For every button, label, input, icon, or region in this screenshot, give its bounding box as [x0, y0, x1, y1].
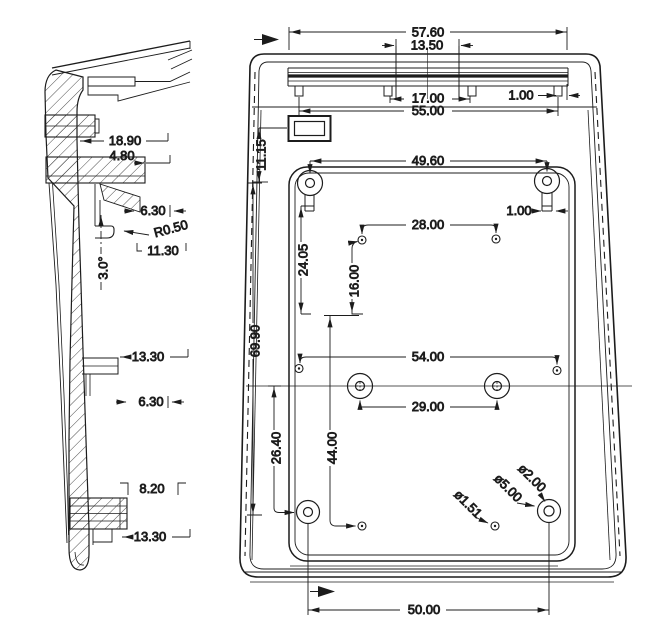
dim-text: 44.00 [325, 432, 340, 465]
dim-right-16-00: 16.00 [347, 242, 364, 315]
dim-text: 28.00 [412, 217, 445, 232]
small-holes [295, 235, 561, 530]
dim-right-1-00-side: 1.00 [506, 203, 568, 218]
dim-text: 8.20 [139, 481, 164, 496]
dim-text: R0.50 [152, 217, 189, 240]
section-arrow-bottom [310, 586, 335, 597]
dim-text: 49.60 [412, 153, 445, 168]
dim-text: 18.90 [109, 133, 142, 148]
dim-text: ø1.51 [451, 487, 485, 521]
snap-tab [468, 86, 476, 96]
dim-right-24-05: 24.05 [296, 206, 312, 314]
dim-text: 4.80 [109, 148, 134, 163]
dim-text: 55.00 [412, 103, 445, 118]
dim-text: 69.90 [248, 325, 263, 358]
dim-right-49-60: 49.60 [310, 153, 547, 174]
dim-left-13-30-mid: 13.30 [120, 349, 188, 364]
shelf-step-section [100, 184, 140, 212]
dim-text: 3.0° [96, 256, 111, 279]
small-hole [491, 522, 499, 530]
dim-left-6-30-mid: 6.30 [116, 394, 184, 409]
snap-tab [295, 86, 303, 96]
snap-tab [554, 86, 562, 96]
dim-right-1-00-top: 1.00 [508, 84, 580, 103]
small-hole [295, 365, 303, 373]
dim-text: 13.30 [132, 349, 165, 364]
small-hole [358, 236, 366, 244]
small-hole [492, 235, 500, 243]
dim-text: 6.30 [140, 203, 165, 218]
dim-right-13-50: 13.50 [382, 38, 473, 53]
side-section-view: 18.90 4.80 6.30 R0.50 11.30 3.0° [45, 41, 192, 570]
dim-left-r0-50: R0.50 [124, 217, 190, 240]
dim-left-13-30-bot: 13.30 [122, 529, 190, 544]
mounting-boss-bottom-right [538, 500, 561, 523]
dim-right-69-90: 69.90 [247, 183, 263, 515]
dim-text: 54.00 [412, 349, 445, 364]
small-hole [358, 522, 366, 530]
dim-left-8-20: 8.20 [120, 481, 186, 496]
dim-text: 26.40 [269, 432, 284, 465]
dim-text: 24.05 [296, 244, 311, 277]
dim-text: 1.00 [506, 203, 531, 218]
technical-drawing: 18.90 4.80 6.30 R0.50 11.30 3.0° [0, 0, 650, 640]
dim-text: 1.00 [508, 88, 533, 103]
latch-nub [95, 226, 114, 238]
case-wall-section [45, 70, 89, 570]
window-cutout [289, 116, 331, 141]
dim-right-54-00: 54.00 [300, 349, 557, 365]
dim-text: 13.30 [134, 529, 167, 544]
dim-right-28-00: 28.00 [362, 217, 496, 234]
dim-right-dia-1-51: ø1.51 [451, 487, 488, 523]
bottom-view: 57.60 13.50 17.00 55.00 1.00 [240, 25, 632, 618]
dim-text: 11.30 [147, 243, 179, 258]
dim-text: 13.50 [411, 38, 444, 53]
dim-right-44-00: 44.00 [324, 316, 359, 527]
small-hole [553, 367, 561, 375]
dim-right-50-00: 50.00 [308, 523, 549, 617]
dim-text: 16.00 [347, 265, 362, 298]
dim-text: 6.30 [138, 394, 163, 409]
dim-text: 11.15 [254, 139, 269, 171]
dim-right-29-00: 29.00 [360, 399, 497, 414]
mounting-boss-top-left [298, 171, 323, 212]
technical-drawing-page: 18.90 4.80 6.30 R0.50 11.30 3.0° [0, 0, 650, 640]
mounting-boss-top-right [535, 169, 560, 212]
dim-text: 29.00 [412, 399, 445, 414]
dim-text: 50.00 [408, 602, 441, 617]
snap-tab [384, 86, 392, 96]
dim-left-11-30: 11.30 [137, 243, 186, 258]
mounting-boss-bottom-left [297, 501, 320, 524]
section-arrow-top [254, 34, 279, 45]
dim-right-26-40: 26.40 [268, 386, 294, 513]
case-outline [240, 54, 626, 582]
